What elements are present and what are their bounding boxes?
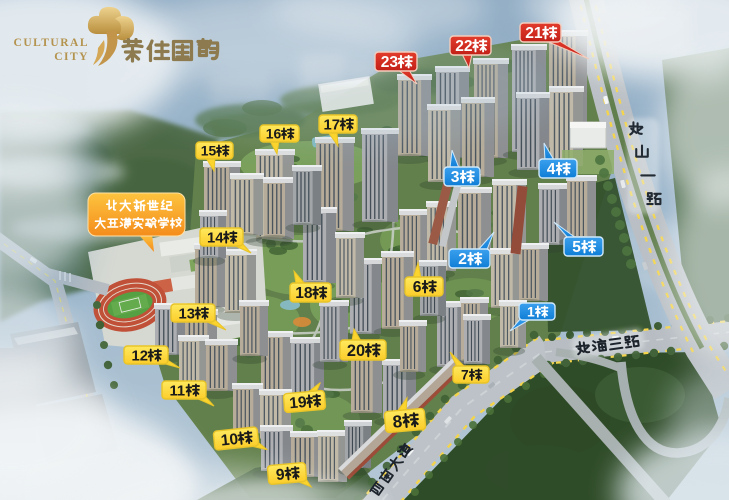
svg-text:4: 4: [547, 161, 556, 178]
svg-text:15: 15: [201, 143, 217, 159]
svg-text:21: 21: [525, 25, 543, 42]
svg-text:5: 5: [572, 239, 581, 256]
svg-text:16: 16: [266, 126, 282, 142]
svg-text:12: 12: [132, 348, 148, 364]
svg-text:18: 18: [295, 285, 313, 302]
svg-text:22: 22: [455, 38, 473, 55]
svg-text:13: 13: [179, 306, 195, 322]
svg-text:7: 7: [461, 367, 469, 383]
svg-text:1: 1: [527, 304, 535, 320]
svg-text:20: 20: [347, 342, 365, 360]
svg-text:9: 9: [275, 466, 285, 484]
svg-text:23: 23: [381, 54, 399, 71]
svg-text:CITY: CITY: [54, 51, 89, 63]
svg-text:CULTURAL: CULTURAL: [14, 37, 89, 49]
svg-text:10: 10: [220, 431, 239, 450]
svg-text:11: 11: [170, 383, 186, 399]
svg-text:2: 2: [458, 251, 467, 268]
svg-text:6: 6: [413, 279, 422, 296]
svg-text:17: 17: [324, 117, 340, 133]
svg-text:14: 14: [207, 230, 224, 246]
svg-text:3: 3: [451, 169, 460, 186]
svg-text:19: 19: [289, 394, 308, 412]
